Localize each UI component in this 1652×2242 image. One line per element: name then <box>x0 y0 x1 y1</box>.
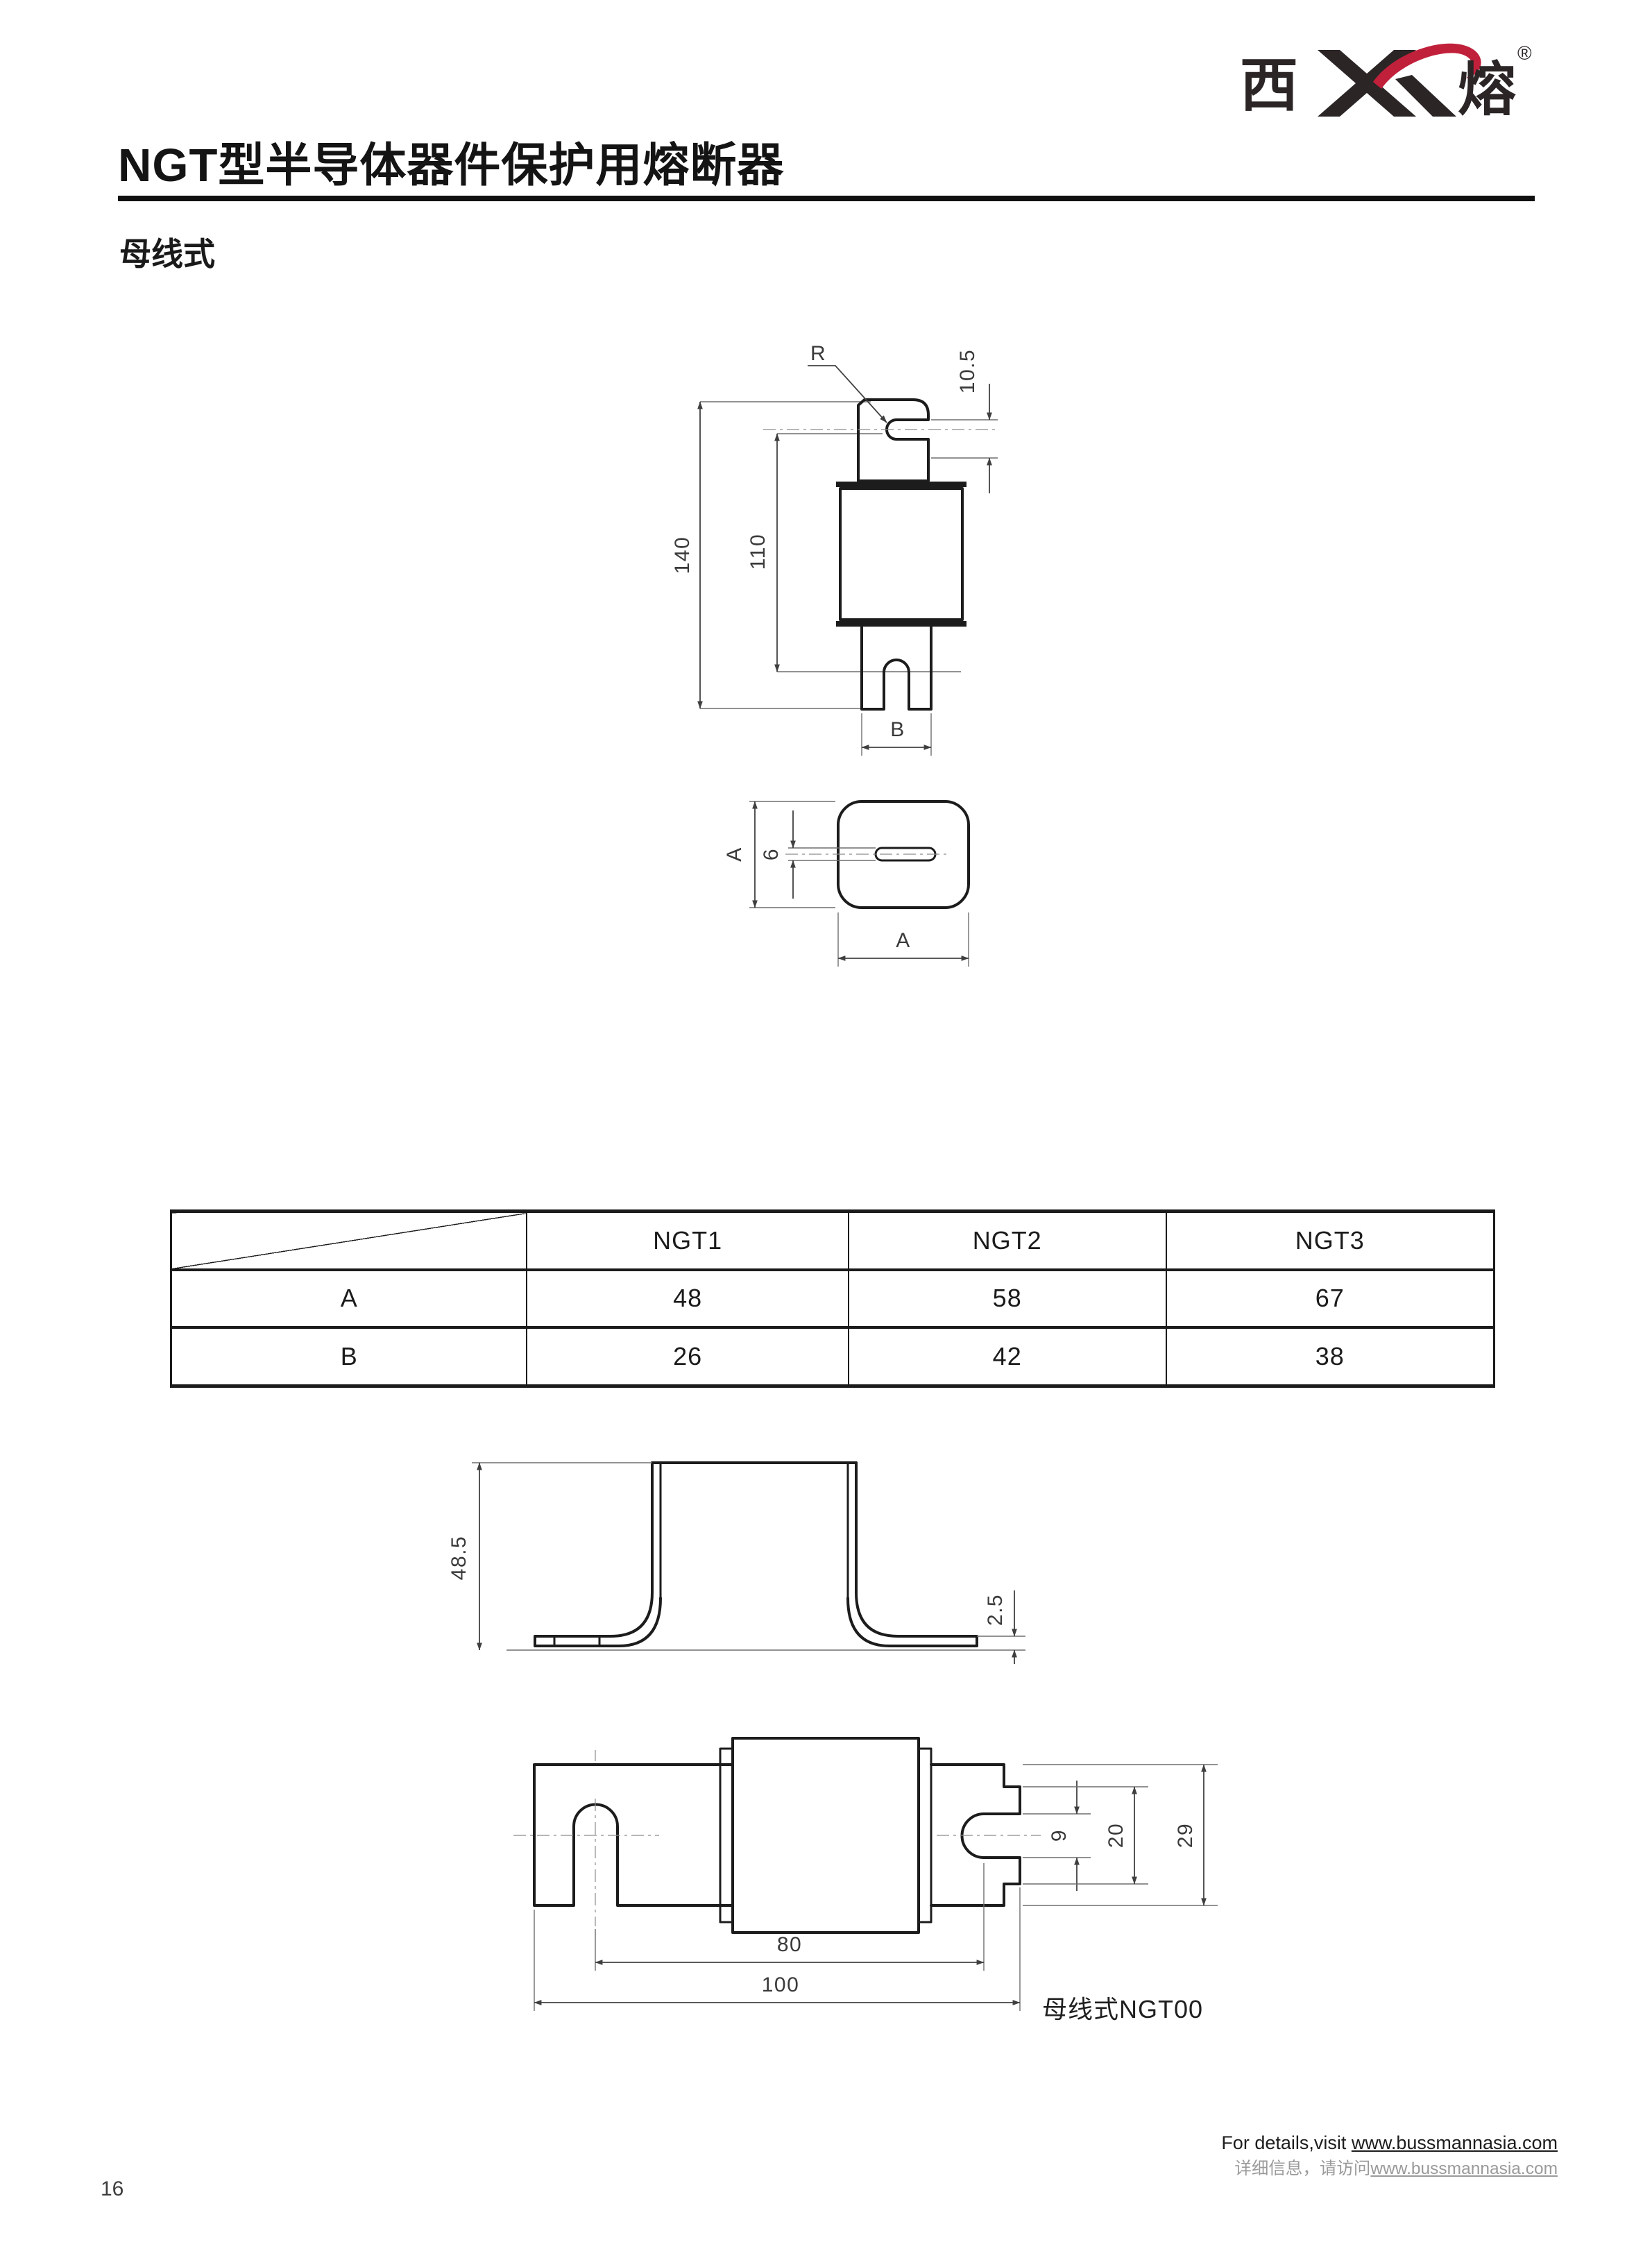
table-cell: 26 <box>527 1327 848 1386</box>
footer: For details,visit www.bussmannasia.com 详… <box>1221 2130 1558 2181</box>
dim-label-100: 100 <box>762 1973 800 1996</box>
dim-label-48-5: 48.5 <box>448 1536 470 1580</box>
footer-en-text: For details,visit <box>1221 2132 1352 2153</box>
table-col-header: NGT2 <box>849 1212 1166 1270</box>
footer-en-link[interactable]: www.bussmannasia.com <box>1352 2132 1558 2153</box>
table-row-label: B <box>171 1327 527 1386</box>
dim-label-a-bottom: A <box>896 929 911 952</box>
body-left-cap <box>720 1749 733 1922</box>
dim-label-110: 110 <box>747 534 769 570</box>
body-right-cap <box>919 1749 931 1922</box>
fuse-body <box>733 1738 919 1933</box>
dim-label-6: 6 <box>760 848 783 860</box>
radius-leader-line <box>808 366 887 423</box>
logo-char-west: 西 <box>1240 53 1298 118</box>
table-cell: 38 <box>1166 1327 1495 1386</box>
dim-label-29: 29 <box>1174 1823 1197 1848</box>
dim-label-140: 140 <box>671 536 694 575</box>
table-row-label: A <box>171 1270 527 1327</box>
table-cell: 42 <box>849 1327 1166 1386</box>
page-title: NGT型半导体器件保护用熔断器 <box>118 128 784 195</box>
datasheet-page: 西 熔 ® NGT型半导体器件保护用熔断器 母线式 140 110 <box>0 0 1652 2242</box>
fuse-body <box>840 489 962 620</box>
figure-ngt00-plan: 9 20 29 80 100 母线式NGT00 <box>486 1721 1277 2026</box>
dim-label-a-side: A <box>723 847 746 862</box>
footer-line-cn: 详细信息，请访问www.bussmannasia.com <box>1221 2157 1558 2180</box>
dim-label-10-5: 10.5 <box>956 349 979 393</box>
figure-bracket-elevation: 48.5 2.5 <box>444 1429 1027 1665</box>
figure-fuse-elevation: 140 110 R 10.5 B <box>333 316 1027 1114</box>
brand-logo: 西 熔 ® <box>1237 35 1537 121</box>
bottom-blade-outline <box>862 627 931 709</box>
footer-line-en: For details,visit www.bussmannasia.com <box>1221 2130 1558 2155</box>
table-cell: 48 <box>527 1270 848 1327</box>
top-blade-outline <box>858 400 928 481</box>
dim-label-2-5: 2.5 <box>984 1594 1007 1626</box>
dim-label-9: 9 <box>1048 1829 1071 1842</box>
dim-label-b: B <box>890 718 905 741</box>
table-header-row: NGT1 NGT2 NGT3 <box>171 1212 1495 1270</box>
table-corner-cell <box>171 1212 527 1270</box>
right-leg-foot <box>848 1593 977 1646</box>
dim-label-radius: R <box>810 342 826 365</box>
dim-label-20: 20 <box>1105 1823 1127 1848</box>
table-row: B 26 42 38 <box>171 1327 1495 1386</box>
page-number: 16 <box>101 2177 124 2201</box>
dimension-table: NGT1 NGT2 NGT3 A 48 58 67 B 26 42 38 <box>170 1209 1495 1388</box>
table-col-header: NGT3 <box>1166 1212 1495 1270</box>
table-cell: 67 <box>1166 1270 1495 1327</box>
footer-cn-link[interactable]: www.bussmannasia.com <box>1370 2159 1558 2178</box>
registered-mark: ® <box>1517 42 1532 64</box>
table-cell: 58 <box>849 1270 1166 1327</box>
dim-label-80: 80 <box>777 1933 802 1956</box>
logo-xr-monogram <box>1318 44 1481 117</box>
table-col-header: NGT1 <box>527 1212 848 1270</box>
table-row: A 48 58 67 <box>171 1270 1495 1327</box>
footer-cn-text: 详细信息，请访问 <box>1234 2159 1370 2178</box>
figure-caption: 母线式NGT00 <box>1042 1995 1203 2023</box>
logo-char-fuse: 熔 <box>1458 57 1516 121</box>
section-subtitle: 母线式 <box>119 229 215 275</box>
title-divider <box>118 196 1535 201</box>
